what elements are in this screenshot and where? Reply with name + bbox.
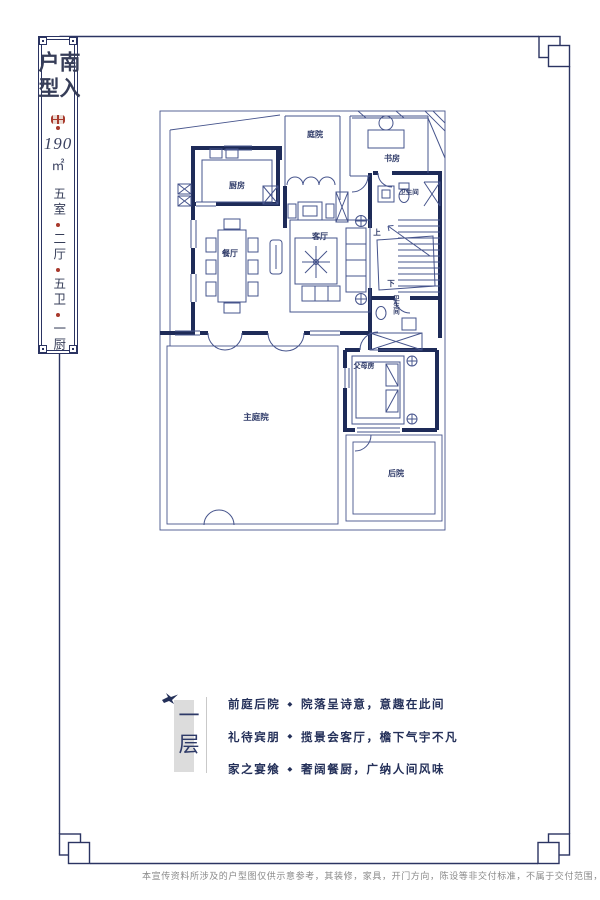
seal-icon [51, 115, 65, 125]
interior-lines [175, 116, 445, 432]
room-spec-list: 五室 二厅 五卫 一厨 [52, 187, 65, 353]
diamond-separator-icon: ◆ [287, 766, 294, 773]
poster-page: 南入户型 190 ㎡ 五室 二厅 五卫 一厨 [0, 0, 600, 900]
area-value: 190 [44, 134, 73, 154]
section-divider [206, 697, 207, 773]
room-label-parents: 父母房 [353, 361, 375, 370]
poem-body: 揽景会客厅，檐下气宇不凡 [301, 732, 458, 744]
poem-head: 礼待宾朋 [228, 732, 280, 744]
room-label-living: 客厅 [311, 231, 328, 241]
floor-plan: 庭院 书房 厨房 卫生间 餐厅 客厅 上 下 父母房 主庭院 后院 卫生间 [140, 88, 460, 558]
room-label-courtyard: 庭院 [307, 129, 323, 139]
poem-lines: 前庭后院◆院落呈诗意，意趣在此间 礼待宾朋◆揽景会客厅，檐下气宇不凡 家之宴飨◆… [228, 696, 458, 794]
diamond-separator-icon: ◆ [287, 733, 294, 740]
poem-body: 院落呈诗意，意趣在此间 [301, 699, 445, 711]
room-label-backyard: 后院 [388, 468, 404, 478]
poem-line: 前庭后院◆院落呈诗意，意趣在此间 [228, 696, 458, 712]
floor-plan-drawing: 庭院 书房 厨房 卫生间 餐厅 客厅 上 下 父母房 主庭院 后院 [140, 88, 460, 558]
room-label-main-courtyard: 主庭院 [243, 412, 269, 422]
diamond-separator-icon: ◆ [287, 701, 294, 708]
spec-item: 二厅 [52, 232, 65, 263]
spec-item: 五卫 [52, 277, 65, 308]
disclaimer-text: 本宣传资料所涉及的户型图仅供示意参考，其装修，家具，开门方向，陈设等非交付标准，… [142, 869, 600, 882]
stairs-up-label: 上 [373, 227, 381, 237]
poem-line: 家之宴飨◆奢阔餐厨，广纳人间风味 [228, 761, 458, 777]
red-dot-icon [56, 313, 60, 317]
room-label-study: 书房 [384, 153, 400, 163]
spec-item: 五室 [52, 187, 65, 218]
floor-label: 一层 [177, 704, 198, 762]
stairs-down-label: 下 [387, 279, 395, 288]
poem-head: 前庭后院 [228, 699, 280, 711]
title-panel: 南入户型 190 ㎡ 五室 二厅 五卫 一厨 [38, 36, 78, 354]
poem-head: 家之宴飨 [228, 764, 280, 776]
room-label-kitchen: 厨房 [229, 180, 245, 190]
poem-line: 礼待宾朋◆揽景会客厅，檐下气宇不凡 [228, 729, 458, 745]
house-type-title: 南入户型 [37, 51, 79, 106]
red-dot-icon [56, 268, 60, 272]
room-label-bath-mid: 卫生间 [391, 295, 398, 315]
spec-item: 一厨 [52, 322, 65, 353]
poem-body: 奢阔餐厨，广纳人间风味 [301, 764, 445, 776]
floor-description-section: 一层 前庭后院◆院落呈诗意，意趣在此间 礼待宾朋◆揽景会客厅，檐下气宇不凡 家之… [158, 692, 468, 784]
red-dot-icon [56, 223, 60, 227]
room-label-bath-upper: 卫生间 [399, 187, 419, 196]
room-label-dining: 餐厅 [221, 248, 238, 258]
area-unit: ㎡ [51, 155, 64, 174]
